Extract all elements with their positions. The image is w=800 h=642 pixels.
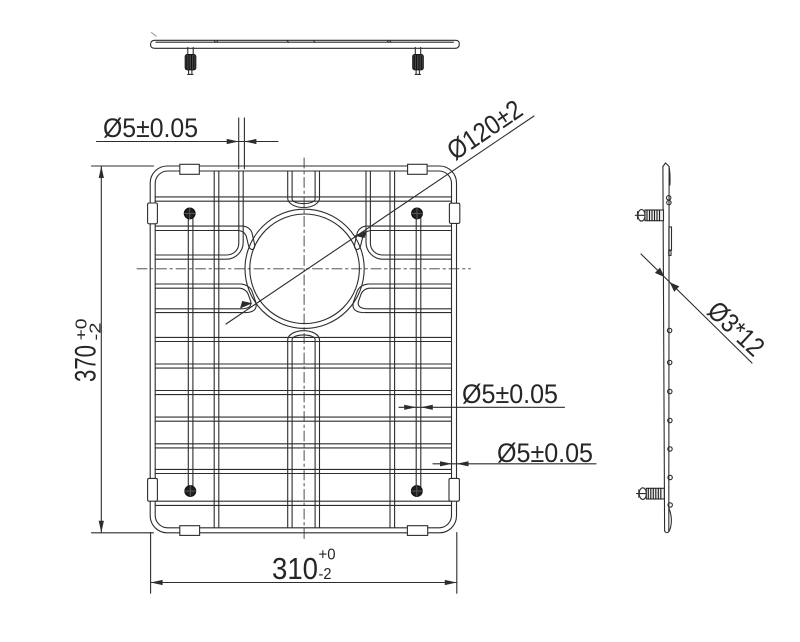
svg-text:Ø5±0.05: Ø5±0.05 [103, 113, 198, 143]
svg-text:-2: -2 [87, 322, 104, 340]
svg-text:310: 310 [272, 551, 318, 586]
svg-text:+0: +0 [319, 547, 336, 564]
svg-text:Ø5±0.05: Ø5±0.05 [497, 438, 593, 468]
svg-text:-2: -2 [319, 566, 332, 583]
svg-text:Ø5±0.05: Ø5±0.05 [462, 379, 558, 409]
svg-text:370: 370 [69, 345, 102, 382]
